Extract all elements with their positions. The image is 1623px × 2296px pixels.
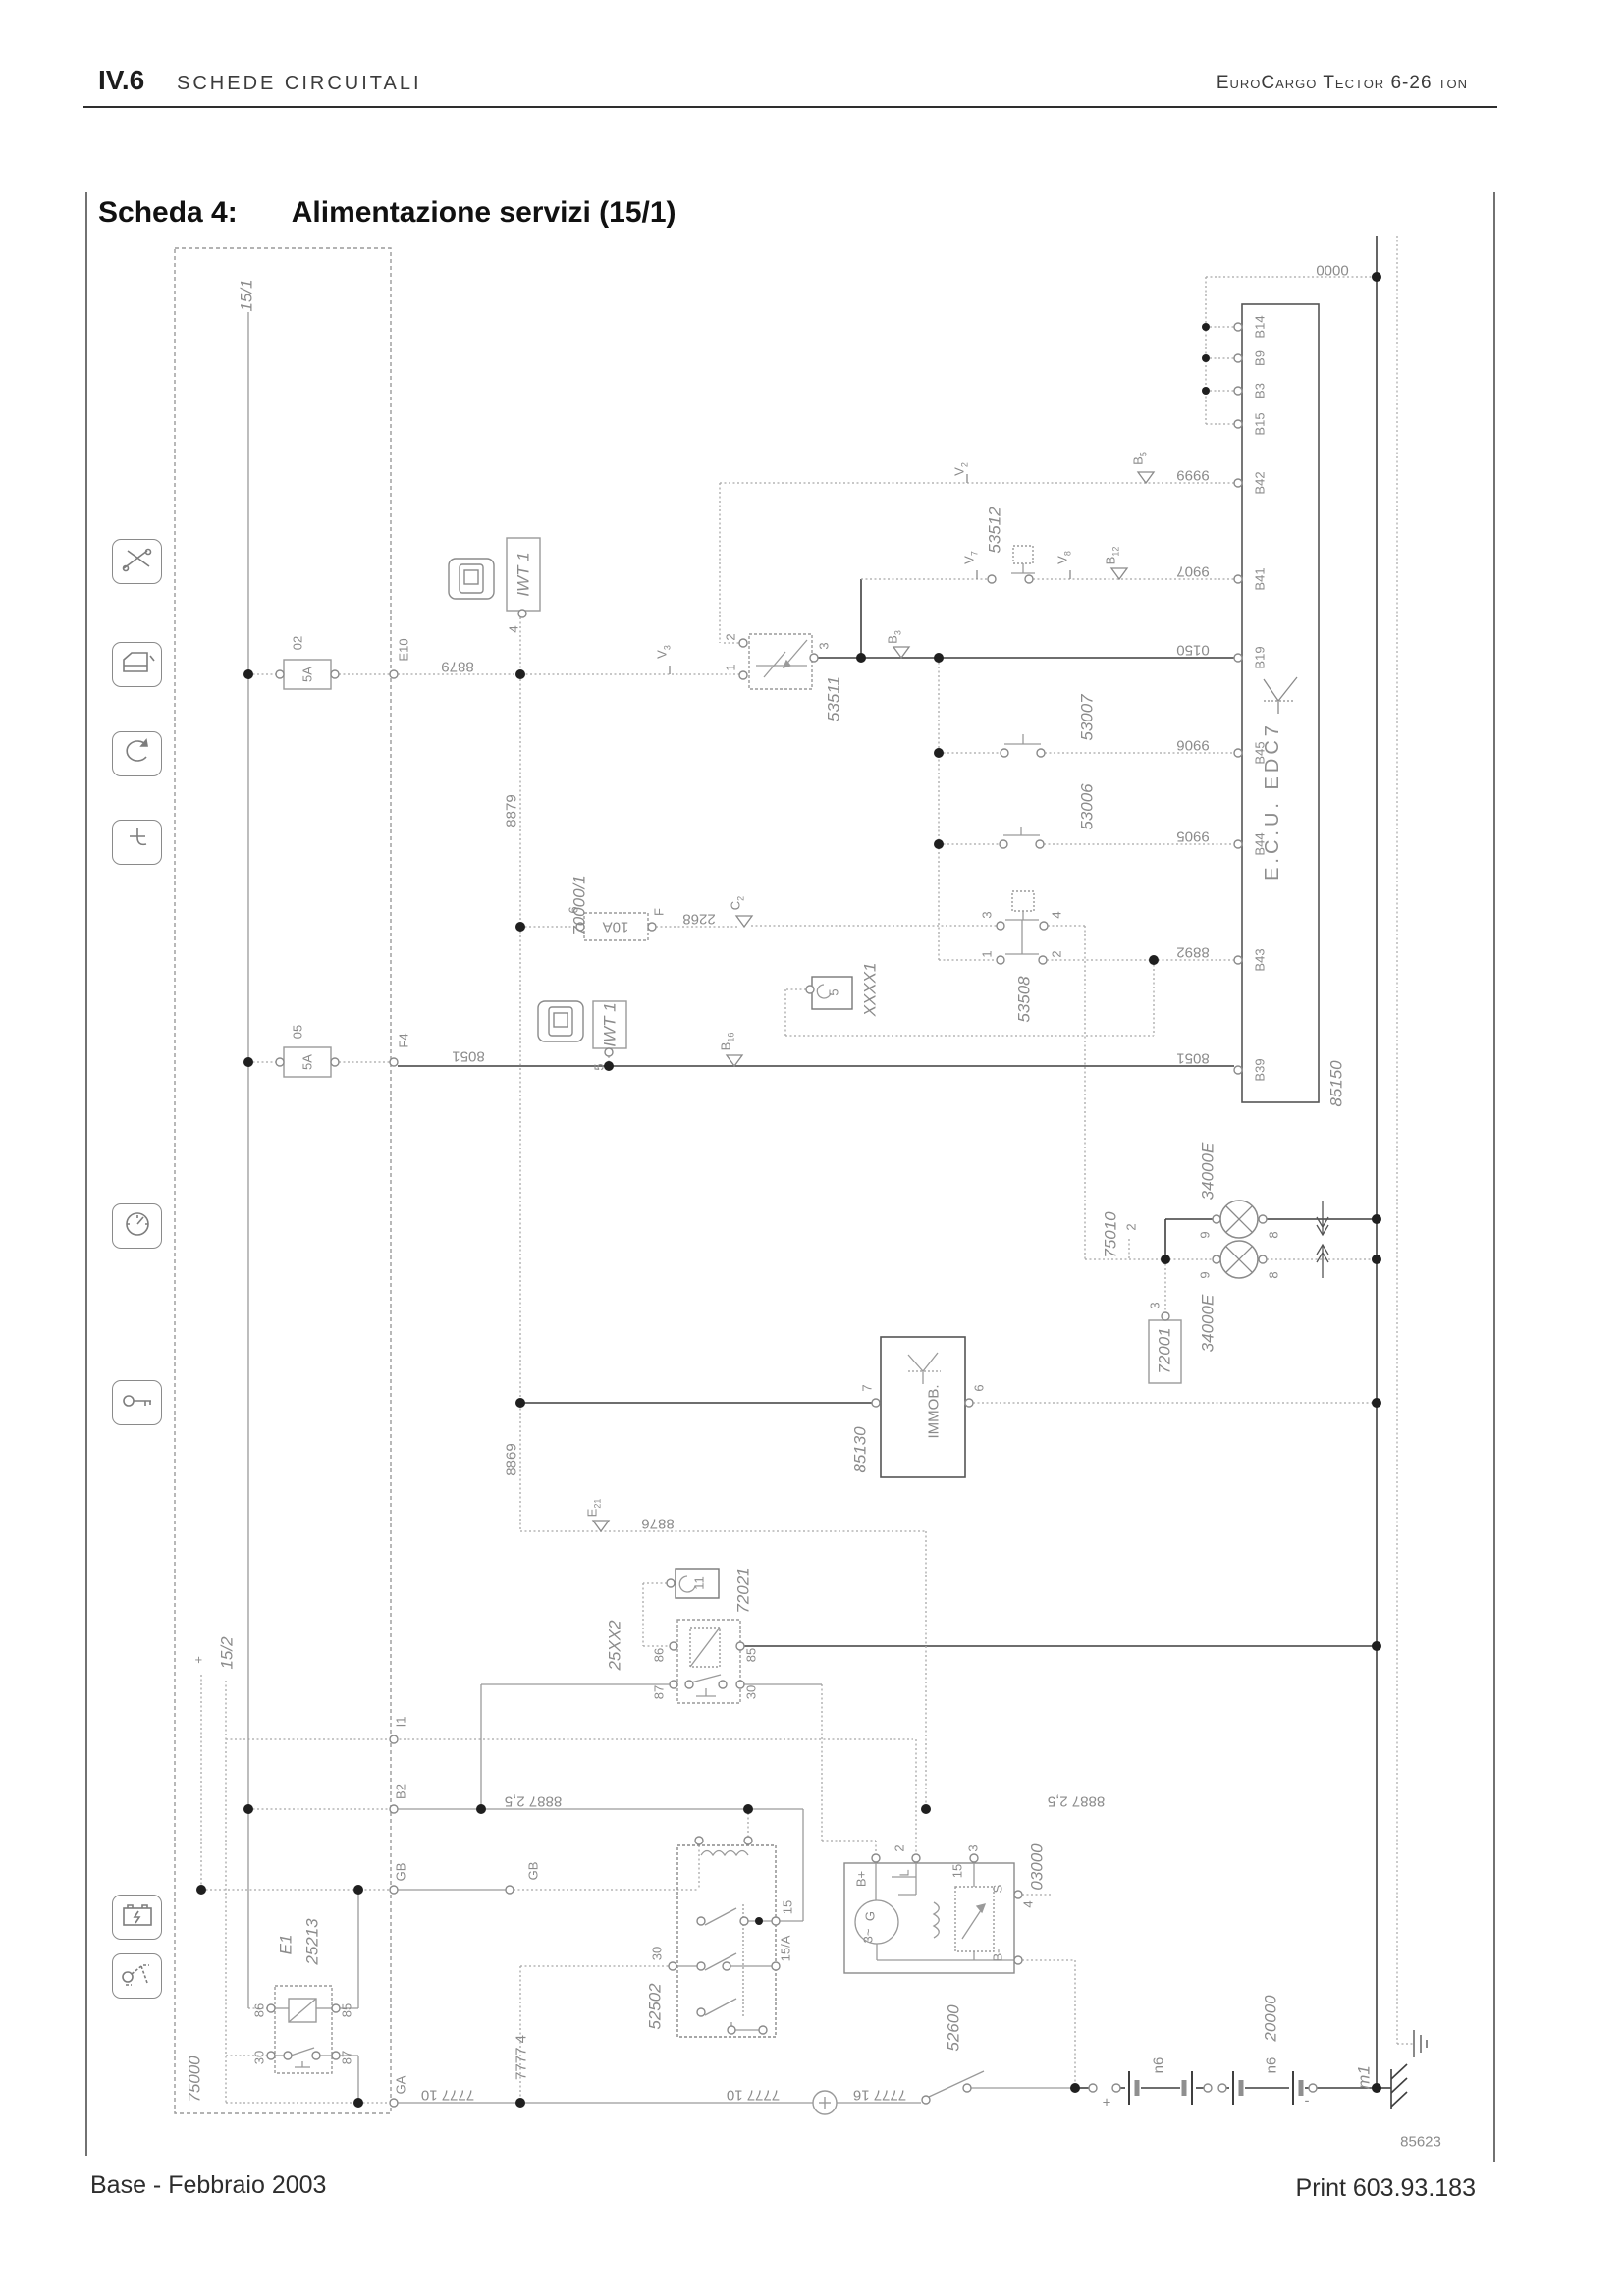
diagram-label: 85 — [341, 2003, 353, 2017]
diagram-label: L — [898, 1869, 911, 1876]
diagram-label: 03000 — [1029, 1843, 1046, 1890]
positive-splice — [813, 2091, 837, 2114]
diagram-label: 11 — [693, 1576, 706, 1590]
diagram-label: 8051 — [452, 1049, 484, 1064]
diagram-frame — [86, 192, 1494, 2162]
diagram-label: 02 — [292, 636, 304, 650]
diagram-label: n6 — [1265, 2057, 1279, 2074]
diagram-label: 9 — [1199, 1271, 1212, 1278]
diagram-label: 9906 — [1176, 738, 1209, 753]
ground-symbols — [1380, 2064, 1407, 2109]
diagram-label: 8 — [1268, 1271, 1280, 1278]
diagram-label: 53007 — [1079, 694, 1096, 740]
diagram-label: 8876 — [641, 1517, 674, 1531]
junction-box-75000 — [175, 248, 391, 2113]
diagram-label: IWT 1 — [602, 1002, 619, 1046]
diagram-label: B+ — [855, 1871, 868, 1887]
pin-terminals — [267, 323, 1317, 2107]
hook-icon — [112, 820, 162, 865]
diagram-label: 5 — [593, 1063, 606, 1070]
manual-page: IV.6 SCHEDE CIRCUITALI EuroCargo Tector … — [0, 0, 1623, 2296]
diagram-label: GB — [527, 1862, 540, 1881]
diagram-label: 2 — [1125, 1223, 1138, 1230]
diagram-label: 9 — [1199, 1231, 1212, 1238]
diagram-label: - — [1305, 2094, 1310, 2109]
diagram-label: 8887 2,5 — [1048, 1794, 1105, 1809]
diagram-label: 30 — [745, 1685, 758, 1699]
diagram-label: 72021 — [735, 1567, 752, 1613]
lamp-symbols — [1220, 1201, 1258, 1278]
diagram-label: 52600 — [946, 2004, 962, 2051]
diagram-label: 2 — [725, 633, 737, 640]
diagram-label: 30 — [651, 1947, 664, 1960]
diagram-label: S — [992, 1885, 1004, 1894]
diagram-label: + — [192, 1656, 205, 1664]
diagram-label: 86 — [653, 1648, 666, 1662]
diagram-label: 15 — [782, 1900, 794, 1914]
diagram-label: 2 — [893, 1844, 906, 1851]
diagram-label: B44 — [1254, 832, 1267, 855]
diagram-label: 9907 — [1176, 564, 1209, 579]
diagram-label: 6 — [973, 1384, 986, 1391]
diagram-label: 53511 — [826, 676, 842, 721]
diagram-label: 34000E — [1200, 1295, 1217, 1353]
diagram-label: B39 — [1254, 1058, 1267, 1081]
diagram-label: 85150 — [1328, 1060, 1345, 1106]
diagram-label: 70000/1 — [571, 875, 588, 934]
diagram-label: B42 — [1254, 471, 1267, 494]
key-icon — [112, 1380, 162, 1425]
diagram-label: 8869 — [505, 1443, 519, 1475]
diagram-label: B15 — [1254, 412, 1267, 435]
diagram-label: I1 — [395, 1717, 407, 1728]
diagram-label: 4 — [508, 625, 520, 632]
diagram-label: 52502 — [647, 1983, 664, 2029]
diagram-label: 3 — [1149, 1302, 1162, 1308]
diagram-label: B3 — [887, 630, 903, 644]
diagram-label: m1 — [1356, 2065, 1373, 2089]
diagram-label: 8887 2,5 — [505, 1794, 562, 1809]
diagram-label: B12 — [1105, 547, 1121, 565]
diagram-label: 15/2 — [219, 1636, 236, 1669]
diagram-label: IMMOB. — [927, 1385, 942, 1439]
schematic-canvas — [0, 0, 1623, 2296]
diagram-label: E1 — [278, 1935, 295, 1955]
diagram-label: 4 — [1051, 911, 1063, 918]
diagram-label: B41 — [1254, 567, 1267, 590]
diagram-label: 3 — [981, 911, 994, 918]
diagram-label: 1 — [725, 664, 737, 670]
diagram-label: 86 — [253, 2003, 266, 2017]
footer-right: Print 603.93.183 — [1296, 2174, 1476, 2203]
diagram-label: 2268 — [682, 912, 715, 927]
diagram-label: IWT 1 — [515, 552, 532, 596]
diagram-label: E10 — [398, 638, 410, 661]
gauge-icon — [112, 1203, 162, 1249]
wiper-icon — [112, 539, 162, 584]
diagram-label: 30 — [253, 2051, 266, 2064]
diagram-label: V2 — [953, 462, 970, 476]
diagram-label: 6 — [568, 906, 580, 913]
diagram-label: F4 — [398, 1033, 410, 1047]
diagram-label: 5A — [301, 667, 314, 682]
diagram-label: V7 — [963, 551, 980, 564]
diagram-label: G — [864, 1911, 877, 1921]
diagram-label: B5 — [1132, 452, 1149, 465]
diagram-label: 8879 — [505, 794, 519, 827]
diagram-label: B45 — [1254, 741, 1267, 764]
diagram-label: 7777 4 — [514, 2035, 529, 2080]
diagram-label: 8051 — [1176, 1051, 1209, 1066]
diagram-label: 85623 — [1400, 2135, 1441, 2150]
diagram-label: 8892 — [1176, 945, 1209, 960]
diagram-label: 75010 — [1103, 1211, 1119, 1257]
diagram-label: n6 — [1152, 2057, 1166, 2074]
diagram-label: 25213 — [304, 1918, 321, 1964]
diagram-label: 4 — [1022, 1900, 1035, 1907]
diagram-label: B19 — [1254, 646, 1267, 668]
diagram-label: C2 — [730, 896, 746, 910]
diagram-label: B43 — [1254, 948, 1267, 971]
diagram-label: B14 — [1254, 315, 1267, 338]
diagram-label: 15/A — [780, 1936, 792, 1962]
diagram-label: V8 — [1056, 551, 1073, 564]
diagram-label: 53512 — [987, 507, 1003, 553]
diagram-label: 2 — [1051, 950, 1063, 957]
battery-icon — [112, 1895, 162, 1940]
diagram-label: 34000E — [1200, 1143, 1217, 1201]
diagram-label: GB — [395, 1863, 407, 1882]
diagram-label: XXXX1 — [862, 963, 879, 1017]
diagram-label: 05 — [292, 1025, 304, 1039]
diagram-label: B9 — [1254, 350, 1267, 366]
immobilizer-box — [881, 1337, 965, 1477]
diagram-label: 85130 — [852, 1426, 869, 1472]
diagram-label: 1 — [981, 950, 994, 957]
diagram-label: 10A — [603, 920, 629, 934]
diagram-label: 5 — [828, 988, 840, 995]
diagram-label: 8879 — [441, 660, 473, 674]
diagram-label: 3 — [818, 642, 831, 649]
diagram-label: B3 — [1254, 383, 1267, 399]
rotation-icon — [112, 731, 162, 776]
diagram-label: F — [653, 908, 666, 916]
diagram-label: 7777 10 — [421, 2088, 474, 2103]
diagram-label: 87 — [341, 2051, 353, 2064]
diagram-label: 7 — [861, 1384, 874, 1391]
cab-tilt-icon — [112, 642, 162, 687]
diagram-label: B- — [992, 1949, 1004, 1962]
diagram-label: B16 — [720, 1033, 736, 1051]
diagram-label: 72001 — [1157, 1327, 1173, 1373]
diagram-label: 9905 — [1176, 829, 1209, 844]
diagram-label: 7777 16 — [853, 2088, 906, 2103]
diagram-label: 53006 — [1079, 783, 1096, 829]
diagram-label: 20000 — [1263, 1995, 1279, 2041]
diagram-label: 15 — [951, 1864, 964, 1878]
footer-left: Base - Febbraio 2003 — [90, 2171, 326, 2200]
diagram-label: 85 — [745, 1648, 758, 1662]
diagram-label: B2 — [395, 1784, 407, 1799]
diagram-label: 75000 — [187, 2056, 203, 2102]
diagram-label: 8 — [1268, 1231, 1280, 1238]
diagram-label: 3~ — [862, 1929, 875, 1944]
diagram-label: 5A — [301, 1054, 314, 1070]
diagram-label: 87 — [653, 1685, 666, 1699]
diagram-label: 15/1 — [239, 279, 255, 311]
diagram-label: GA — [395, 2076, 407, 2095]
diagram-label: 0150 — [1176, 643, 1209, 658]
diagram-label: 0000 — [1316, 264, 1348, 279]
diagram-label: 9999 — [1176, 468, 1209, 483]
diagram-label: 53508 — [1016, 976, 1033, 1022]
diagram-label: 7777 10 — [727, 2088, 780, 2103]
ignition-switch-icon — [112, 1953, 162, 1999]
diagram-label: V3 — [656, 645, 673, 659]
diagram-label: E21 — [586, 1499, 603, 1518]
diagram-label: 3 — [967, 1844, 980, 1851]
diagram-label: 25XX2 — [607, 1620, 623, 1670]
diagram-label: + — [1103, 2096, 1111, 2110]
